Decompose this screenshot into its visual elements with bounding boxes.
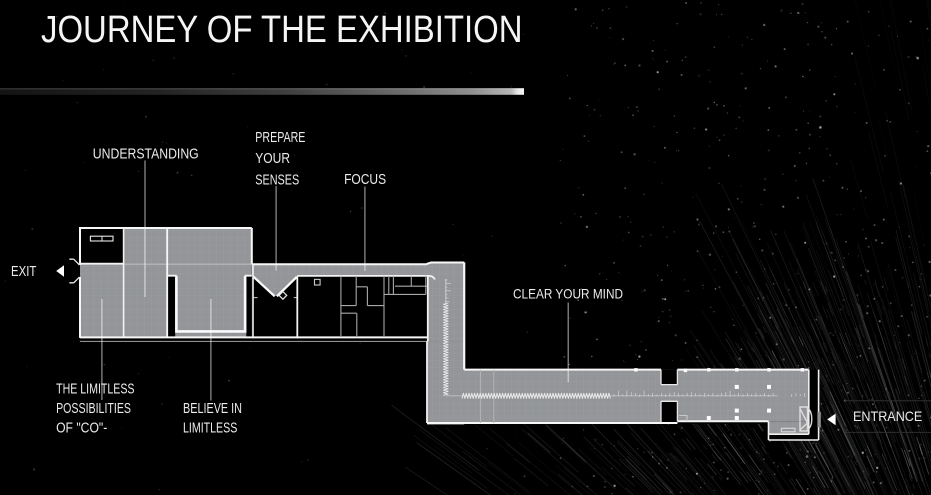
- svg-text:ENTRANCE: ENTRANCE: [853, 408, 922, 424]
- svg-text:FOCUS: FOCUS: [344, 171, 386, 188]
- svg-text:PREPARE: PREPARE: [255, 129, 305, 146]
- svg-text:POSSIBILITIES: POSSIBILITIES: [56, 400, 131, 417]
- svg-text:CLEAR YOUR MIND: CLEAR YOUR MIND: [513, 286, 623, 302]
- svg-text:YOUR: YOUR: [255, 150, 290, 167]
- svg-text:OF "CO"-: OF "CO"-: [56, 420, 107, 437]
- svg-text:UNDERSTANDING: UNDERSTANDING: [93, 145, 199, 162]
- svg-text:SENSES: SENSES: [255, 171, 299, 188]
- svg-text:LIMITLESS: LIMITLESS: [183, 420, 237, 437]
- svg-text:BELIEVE IN: BELIEVE IN: [183, 400, 242, 417]
- svg-text:JOURNEY OF THE EXHIBITION: JOURNEY OF THE EXHIBITION: [41, 9, 523, 51]
- svg-text:THE LIMITLESS: THE LIMITLESS: [56, 381, 134, 398]
- svg-text:EXIT: EXIT: [11, 263, 36, 280]
